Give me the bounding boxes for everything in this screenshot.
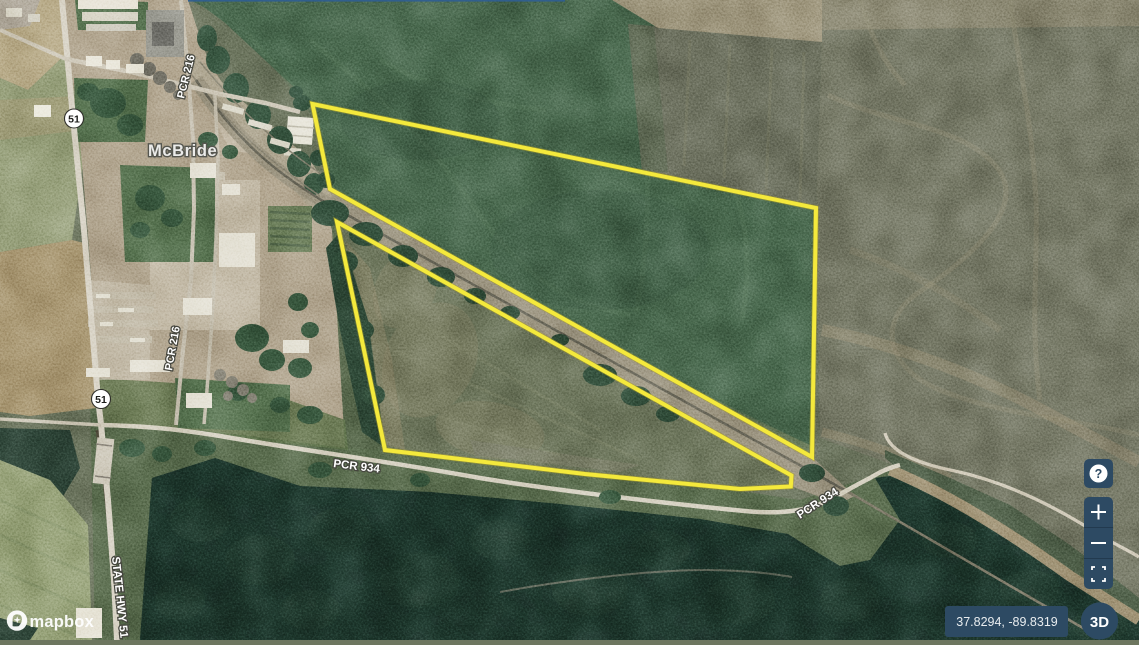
- svg-text:37.8294, -89.8319: 37.8294, -89.8319: [956, 615, 1058, 629]
- svg-text:mapbox: mapbox: [30, 613, 95, 631]
- svg-text:McBride: McBride: [148, 142, 217, 160]
- svg-text:51: 51: [95, 394, 107, 406]
- svg-text:PCR 934: PCR 934: [795, 486, 841, 522]
- svg-text:51: 51: [68, 114, 80, 126]
- svg-text:PCR 934: PCR 934: [333, 458, 381, 476]
- svg-text:3D: 3D: [1090, 614, 1109, 631]
- svg-text:PCR 216: PCR 216: [163, 325, 183, 371]
- svg-text:PCR 216: PCR 216: [175, 54, 197, 100]
- svg-text:?: ?: [1095, 467, 1103, 481]
- svg-text:STATE HWY 51: STATE HWY 51: [109, 556, 130, 639]
